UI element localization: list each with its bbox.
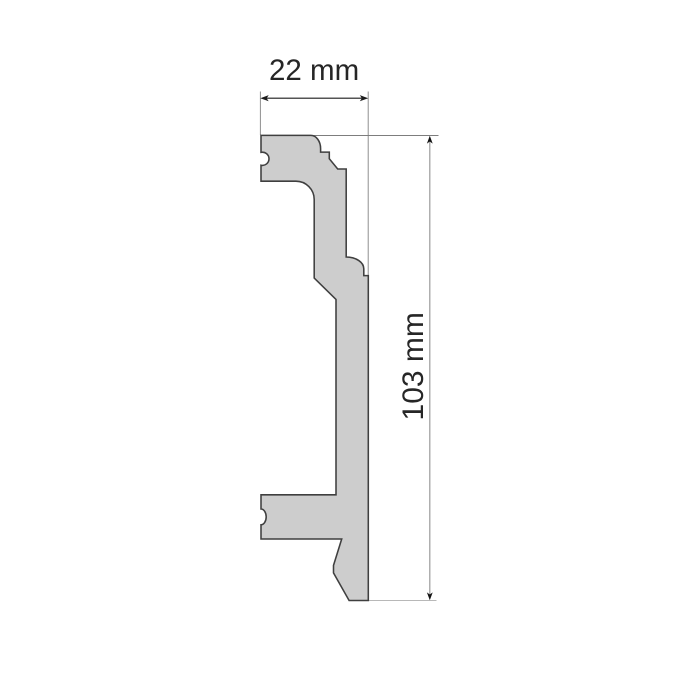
svg-text:103 mm: 103 mm [397,312,430,420]
svg-text:22 mm: 22 mm [269,54,359,87]
